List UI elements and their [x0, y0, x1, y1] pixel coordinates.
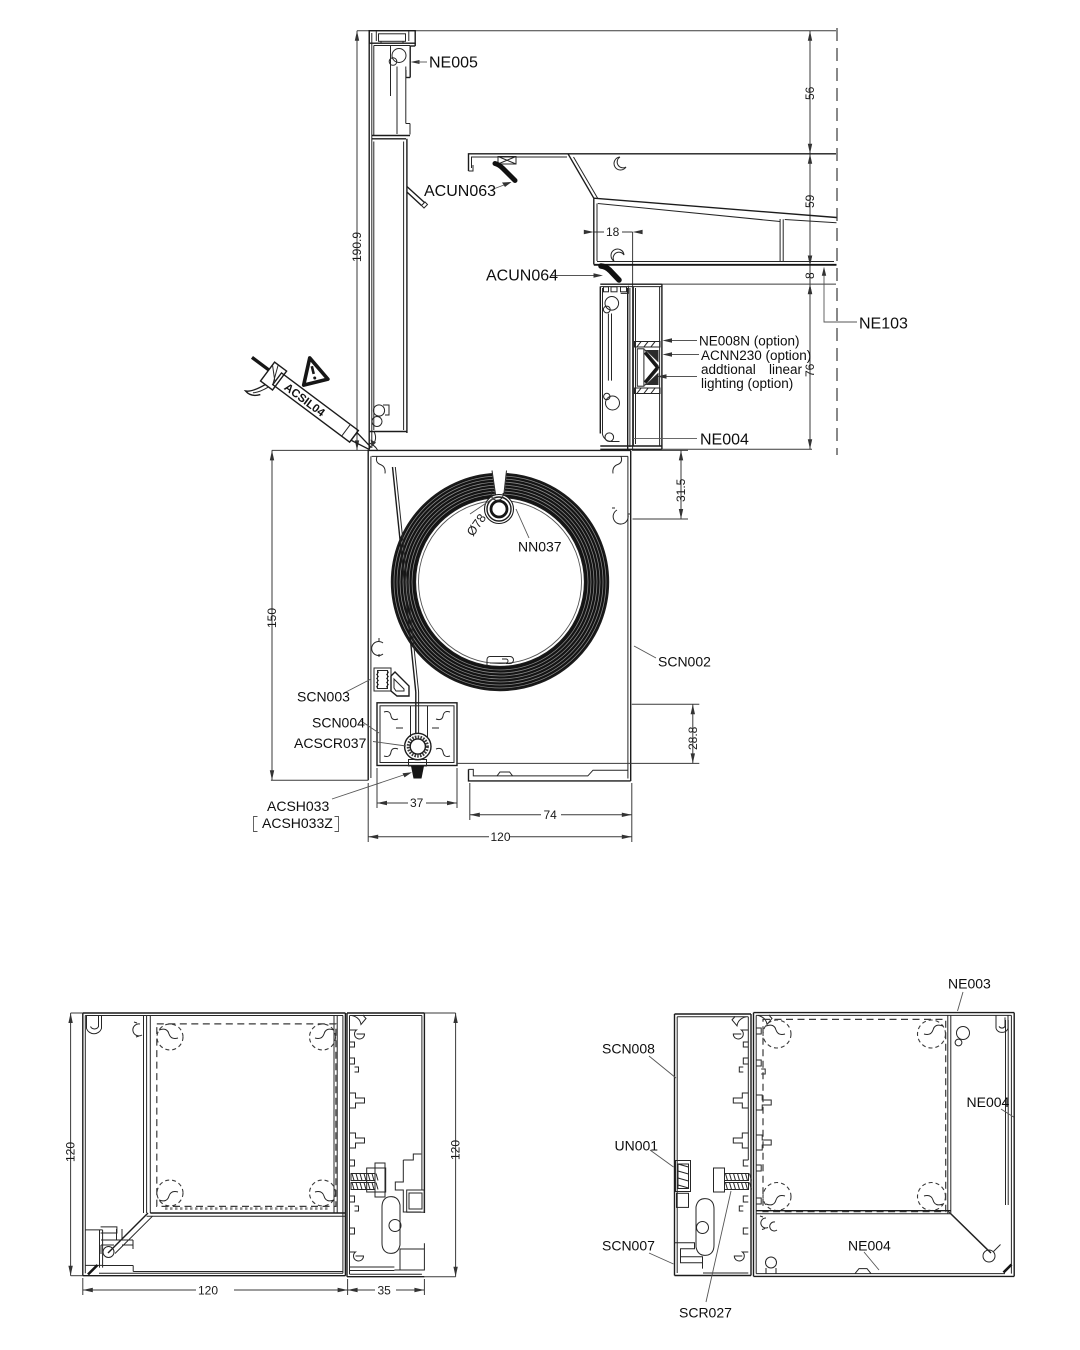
svg-text:37: 37 — [410, 796, 424, 810]
svg-text:ACNN230 (option): ACNN230 (option) — [701, 348, 811, 363]
svg-text:NE004: NE004 — [848, 1238, 891, 1254]
svg-text:ACSCR037: ACSCR037 — [294, 735, 367, 751]
svg-text:120: 120 — [64, 1142, 78, 1162]
svg-text:150: 150 — [265, 608, 279, 628]
svg-text:59: 59 — [803, 194, 817, 208]
svg-text:28.8: 28.8 — [686, 726, 700, 750]
svg-text:56: 56 — [803, 86, 817, 100]
svg-text:NE008N (option): NE008N (option) — [699, 334, 800, 349]
svg-text:74: 74 — [544, 808, 558, 822]
svg-text:SCR027: SCR027 — [679, 1305, 732, 1321]
svg-text:35: 35 — [378, 1284, 392, 1298]
svg-text:UN001: UN001 — [615, 1138, 659, 1154]
svg-text:ACUN064: ACUN064 — [486, 268, 558, 285]
svg-text:SCN003: SCN003 — [297, 689, 350, 705]
svg-text:18: 18 — [606, 225, 620, 239]
svg-text:8: 8 — [803, 272, 817, 279]
svg-text:120: 120 — [491, 830, 511, 844]
svg-text:NE004: NE004 — [967, 1094, 1010, 1110]
svg-text:SCN002: SCN002 — [658, 654, 711, 670]
svg-text:120: 120 — [198, 1284, 218, 1298]
svg-text:SCN004: SCN004 — [312, 715, 365, 731]
svg-text:NE003: NE003 — [948, 976, 991, 992]
svg-text:NN037: NN037 — [518, 539, 562, 555]
svg-text:ACUN063: ACUN063 — [424, 183, 496, 200]
svg-text:SCN008: SCN008 — [602, 1041, 655, 1057]
svg-text:SCN007: SCN007 — [602, 1238, 655, 1254]
svg-text:NE103: NE103 — [859, 316, 908, 333]
svg-text:190.9: 190.9 — [350, 232, 364, 262]
svg-text:addtional: addtional — [701, 362, 756, 377]
svg-text:76: 76 — [803, 363, 817, 377]
svg-text:ACSH033: ACSH033 — [267, 798, 329, 814]
svg-text:120: 120 — [449, 1140, 463, 1160]
svg-text:ACSH033Z: ACSH033Z — [262, 815, 333, 831]
svg-text:NE004: NE004 — [700, 432, 749, 449]
svg-text:lighting (option): lighting (option) — [701, 376, 793, 391]
svg-text:NE005: NE005 — [429, 55, 478, 72]
svg-text:31.5: 31.5 — [674, 478, 688, 502]
svg-text:linear: linear — [769, 362, 803, 377]
